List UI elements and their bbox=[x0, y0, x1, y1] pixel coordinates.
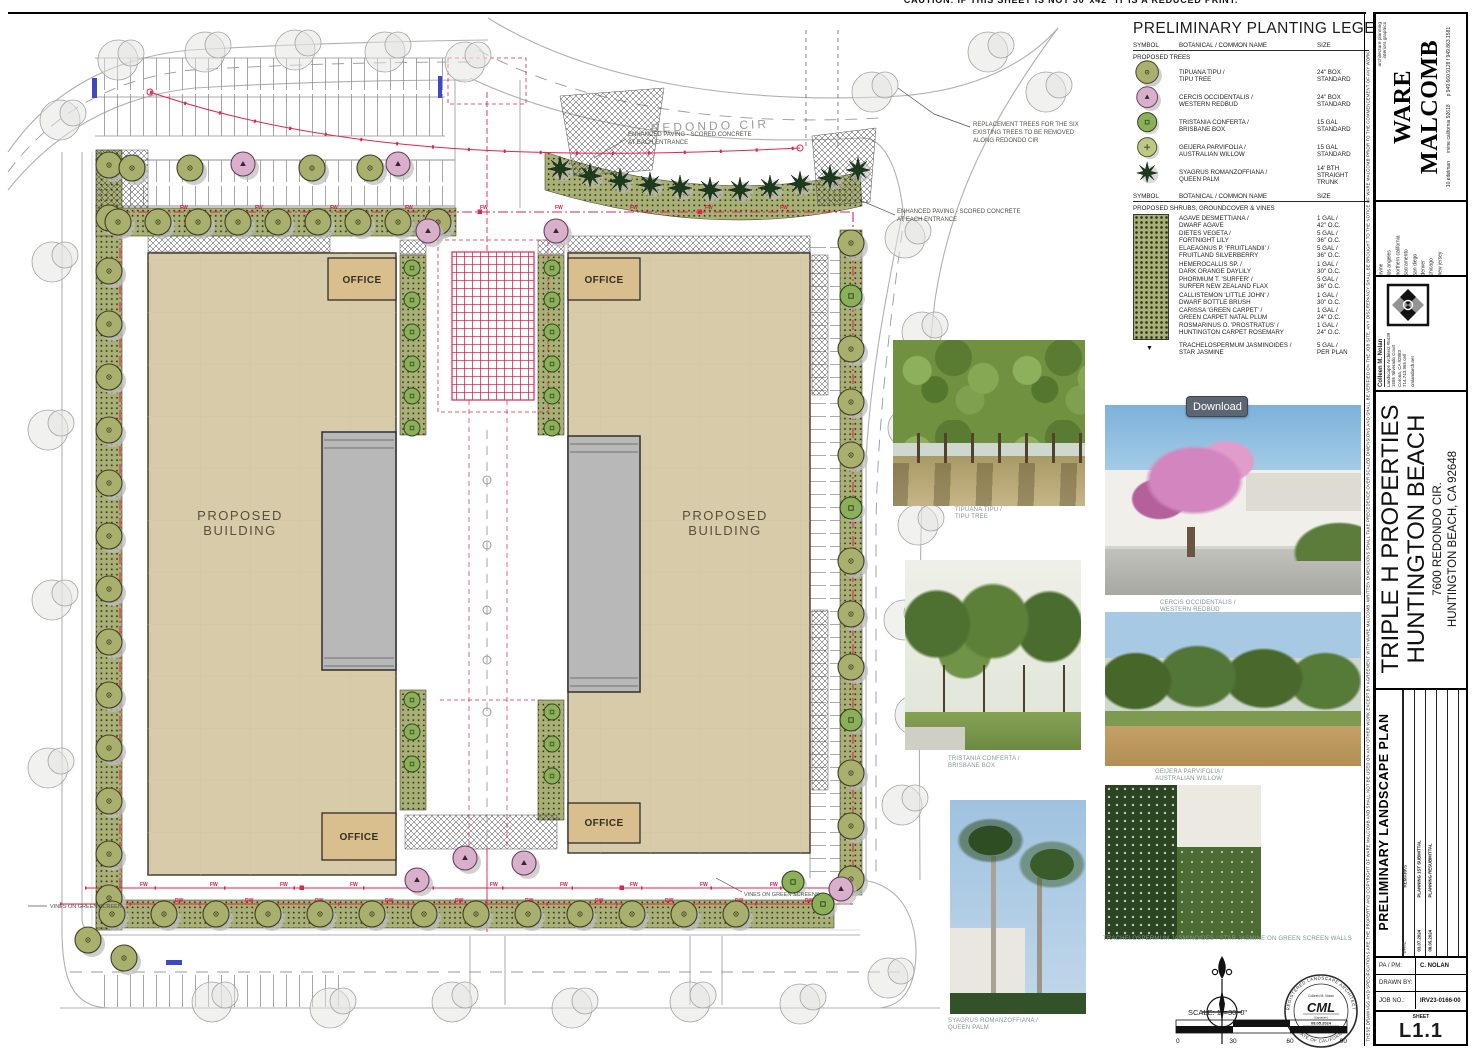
project-block: TRIPLE H PROPERTIES HUNTINGTON BEACH 760… bbox=[1376, 392, 1466, 690]
svg-text:VINES ON GREEN SCREEN: VINES ON GREEN SCREEN bbox=[50, 904, 122, 910]
legend-shrub-row: HEMEROCALLIS SP. /DARK ORANGE DAYLILY 1 … bbox=[1179, 260, 1369, 275]
disclaimer-text: THESE DRAWINGS AND SPECIFICATIONS ARE TH… bbox=[1366, 12, 1373, 1042]
photo-caption-australian-willow: GEIJERA PARVIFOLIA /AUSTRALIAN WILLOW bbox=[1155, 769, 1335, 783]
svg-text:90: 90 bbox=[1340, 1038, 1348, 1045]
svg-text:CML: CML bbox=[1307, 1000, 1335, 1015]
svg-text:ENHANCED PAVING - SCORED CONCR: ENHANCED PAVING - SCORED CONCRETE bbox=[897, 209, 1020, 215]
revision-date-header: DATE bbox=[1402, 898, 1413, 954]
legend-title: PRELIMINARY PLANTING LEGEND bbox=[1133, 20, 1369, 38]
sheet-number: L1.1 bbox=[1376, 1020, 1466, 1042]
shrub-groundcover-swatch-icon bbox=[1133, 214, 1169, 340]
svg-text:BUILDING: BUILDING bbox=[688, 523, 761, 538]
svg-text:AT EACH ENTRANCE: AT EACH ENTRANCE bbox=[897, 217, 957, 223]
photo-star-jasmine bbox=[1105, 785, 1261, 939]
consultant-info: Colleen M. Nolan Landscape Architect #54… bbox=[1378, 329, 1464, 387]
photo-caption-queen-palm: SYAGRUS ROMANZOFFIANA /QUEEN PALM bbox=[948, 1018, 1128, 1032]
svg-text:DW: DW bbox=[175, 898, 184, 904]
project-address-2: HUNTINGTON BEACH, CA 92648 bbox=[1447, 392, 1460, 686]
project-city: HUNTINGTON BEACH bbox=[1404, 392, 1430, 686]
tipu-tree-symbol-icon bbox=[1133, 60, 1163, 86]
svg-text:Colleen M. Nolan: Colleen M. Nolan bbox=[1308, 994, 1334, 998]
photo-queen-palm bbox=[950, 800, 1086, 1014]
revision-remarks-header: REMARKS bbox=[1403, 698, 1414, 888]
consultant-logo-icon bbox=[1386, 283, 1430, 327]
svg-text:FW: FW bbox=[255, 205, 263, 211]
firm-address: 10 edelmanirvine california 92618p 949.6… bbox=[1446, 14, 1452, 200]
svg-text:FW: FW bbox=[630, 882, 638, 888]
svg-text:0: 0 bbox=[1176, 1038, 1180, 1045]
project-client: TRIPLE H PROPERTIES bbox=[1378, 392, 1404, 686]
svg-text:PROPOSED: PROPOSED bbox=[197, 508, 283, 523]
svg-text:FW: FW bbox=[700, 882, 708, 888]
svg-text:DW: DW bbox=[455, 898, 464, 904]
legend-shrubs-heading: PROPOSED SHRUBS, GROUNDCOVER & VINES bbox=[1133, 205, 1369, 212]
sheet-title: PRELIMINARY LANDSCAPE PLAN bbox=[1377, 690, 1399, 954]
svg-text:08.05.2024: 08.05.2024 bbox=[1311, 1021, 1332, 1026]
drawn-by-row: DRAWN BY: bbox=[1376, 975, 1466, 992]
photo-caption-tipu: TIPUANA TIPU /TIPU TREE bbox=[955, 507, 1135, 521]
svg-text:EXISTING TREES TO BE REMOVED: EXISTING TREES TO BE REMOVED bbox=[973, 130, 1075, 136]
svg-text:VINES ON GREEN SCREENS: VINES ON GREEN SCREENS bbox=[744, 892, 820, 898]
sheet-title-revisions-block: PRELIMINARY LANDSCAPE PLAN DATE REMARKS … bbox=[1376, 690, 1466, 958]
firm-block: architecture planning interiors graphics… bbox=[1376, 14, 1466, 202]
planting-legend: PRELIMINARY PLANTING LEGEND SYMBOL BOTAN… bbox=[1133, 20, 1369, 357]
svg-text:AT EACH ENTRANCE: AT EACH ENTRANCE bbox=[628, 140, 688, 146]
svg-text:DW: DW bbox=[595, 898, 604, 904]
svg-text:DW: DW bbox=[245, 898, 254, 904]
svg-text:FW: FW bbox=[560, 882, 568, 888]
svg-text:OFFICE: OFFICE bbox=[339, 832, 378, 843]
legend-header: SYMBOL BOTANICAL / COMMON NAME SIZE bbox=[1133, 42, 1369, 51]
svg-text:FW: FW bbox=[180, 205, 188, 211]
revision-row: 03.07.2024 PLANNING 1ST SUBMITTAL bbox=[1414, 696, 1425, 952]
queen-palm-symbol-icon bbox=[1133, 160, 1163, 186]
svg-text:30: 30 bbox=[1229, 1038, 1237, 1045]
dock-area-left bbox=[322, 432, 396, 670]
title-block: architecture planning interiors graphics… bbox=[1374, 12, 1468, 1046]
photo-caption-redbud: CERCIS OCCIDENTALIS /WESTERN REDBUD bbox=[1160, 600, 1340, 614]
svg-text:FW: FW bbox=[405, 205, 413, 211]
svg-text:PROPOSED: PROPOSED bbox=[682, 508, 768, 523]
svg-text:DW: DW bbox=[665, 898, 674, 904]
redbud-tree-symbol-icon bbox=[1133, 85, 1163, 111]
photo-caption-brisbane-box: TRISTANIA CONFERTA /BRISBANE BOX bbox=[948, 756, 1128, 770]
legend-shrub-row: ROSMARINUS O. 'PROSTRATUS' /HUNTINGTON C… bbox=[1179, 322, 1369, 337]
svg-text:OFFICE: OFFICE bbox=[584, 275, 623, 286]
firm-offices: irvinelos angeles northern californiasac… bbox=[1378, 203, 1464, 276]
photo-tipu-tree bbox=[893, 340, 1085, 506]
photo-caption-star-jasmine: TRACHELOSPERMUM JASMINOIDES / STAR JASMI… bbox=[1103, 936, 1363, 943]
brisbane-box-symbol-icon bbox=[1133, 110, 1163, 136]
svg-text:FW: FW bbox=[705, 205, 713, 211]
svg-text:FW: FW bbox=[630, 205, 638, 211]
svg-text:FW: FW bbox=[280, 882, 288, 888]
disclaimer-strip: THESE DRAWINGS AND SPECIFICATIONS ARE TH… bbox=[1364, 12, 1374, 1046]
building-label-left: PROPOSED BUILDING bbox=[197, 508, 283, 538]
photo-australian-willow bbox=[1105, 612, 1361, 766]
photo-brisbane-box bbox=[905, 560, 1081, 750]
svg-text:FW: FW bbox=[780, 205, 788, 211]
architect-stamp-seal: REGISTERED LANDSCAPE ARCHITECT STATE OF … bbox=[1285, 975, 1357, 1047]
svg-text:FW: FW bbox=[555, 205, 563, 211]
revision-row: 08.05.2024 PLANNING RESUBMITTAL bbox=[1425, 696, 1436, 952]
project-address: 7600 REDONDO CIR. bbox=[1432, 392, 1445, 686]
utility-dashed-lines bbox=[806, 30, 838, 150]
star-jasmine-symbol-icon: ▼ bbox=[1146, 345, 1179, 352]
drawing-info-block: PA / PM:C. NOLAN DRAWN BY: JOB NO.:IRV23… bbox=[1376, 958, 1466, 1012]
firm-name: WARE MALCOMB bbox=[1390, 14, 1444, 200]
legend-shrub-row: PHORMIUM T. 'SURFER' /SURFER NEW ZEALAND… bbox=[1179, 276, 1369, 291]
svg-text:FW: FW bbox=[770, 882, 778, 888]
svg-text:DW: DW bbox=[385, 898, 394, 904]
legend-shrub-row: DIETES VEGETA /FORTNIGHT LILY 5 GAL /36"… bbox=[1179, 229, 1369, 244]
legend-shrub-row: CALLISTEMON 'LITTLE JOHN' /DWARF BOTTLE … bbox=[1179, 291, 1369, 306]
sheet-number-block: SHEET L1.1 bbox=[1376, 1012, 1466, 1042]
legend-header-2: SYMBOL BOTANICAL / COMMON NAME SIZE bbox=[1133, 193, 1369, 202]
svg-text:FW: FW bbox=[480, 205, 488, 211]
landscape-plan-sheet: CAUTION: IF THIS SHEET IS NOT 30"x42" IT… bbox=[0, 0, 1472, 1053]
job-no-row: JOB NO.:IRV23-0166-00 bbox=[1376, 992, 1466, 1009]
svg-text:REPLACEMENT TREES FOR THE SIX: REPLACEMENT TREES FOR THE SIX bbox=[973, 122, 1079, 128]
pa-pm-row: PA / PM:C. NOLAN bbox=[1376, 958, 1466, 975]
svg-text:ALONG REDONDO CIR: ALONG REDONDO CIR bbox=[973, 138, 1039, 144]
legend-row-queen-palm: SYAGRUS ROMANZOFFIANA /QUEEN PALM 14' BT… bbox=[1133, 163, 1369, 188]
svg-text:ENHANCED PAVING - SCORED CONCR: ENHANCED PAVING - SCORED CONCRETE bbox=[628, 132, 751, 138]
legend-shrub-row: ELAEAGNUS P. 'FRUITLANDII' /FRUITLAND SI… bbox=[1179, 245, 1369, 260]
legend-shrub-row: CARISSA 'GREEN CARPET' /GREEN CARPET NAT… bbox=[1179, 306, 1369, 321]
svg-text:FW: FW bbox=[490, 882, 498, 888]
scale-label: SCALE: 1"=30'-0" bbox=[1188, 1008, 1247, 1017]
legend-shrub-row: TRACHELOSPERMUM JASMINOIDES /STAR JASMIN… bbox=[1179, 341, 1369, 356]
svg-text:60: 60 bbox=[1286, 1038, 1294, 1045]
building-label-right: PROPOSED BUILDING bbox=[682, 508, 768, 538]
svg-text:FW: FW bbox=[330, 205, 338, 211]
svg-text:FW: FW bbox=[140, 882, 148, 888]
svg-text:OFFICE: OFFICE bbox=[584, 818, 623, 829]
svg-text:FW: FW bbox=[210, 882, 218, 888]
firm-offices-block: irvinelos angeles northern californiasac… bbox=[1376, 202, 1466, 277]
svg-text:OFFICE: OFFICE bbox=[342, 275, 381, 286]
dock-area-right bbox=[568, 436, 640, 692]
svg-text:(Signature): (Signature) bbox=[1314, 1016, 1328, 1020]
firm-services: architecture planning interiors graphics bbox=[1378, 14, 1389, 200]
consultant-block: Colleen M. Nolan Landscape Architect #54… bbox=[1376, 277, 1466, 392]
download-button[interactable]: Download bbox=[1186, 396, 1248, 417]
australian-willow-symbol-icon bbox=[1133, 135, 1163, 161]
svg-text:BUILDING: BUILDING bbox=[203, 523, 276, 538]
svg-text:FW: FW bbox=[350, 882, 358, 888]
photo-western-redbud bbox=[1105, 405, 1361, 595]
legend-shrub-row: AGAVE DESMETTIANA /DWARF AGAVE 1 GAL /42… bbox=[1179, 214, 1369, 229]
